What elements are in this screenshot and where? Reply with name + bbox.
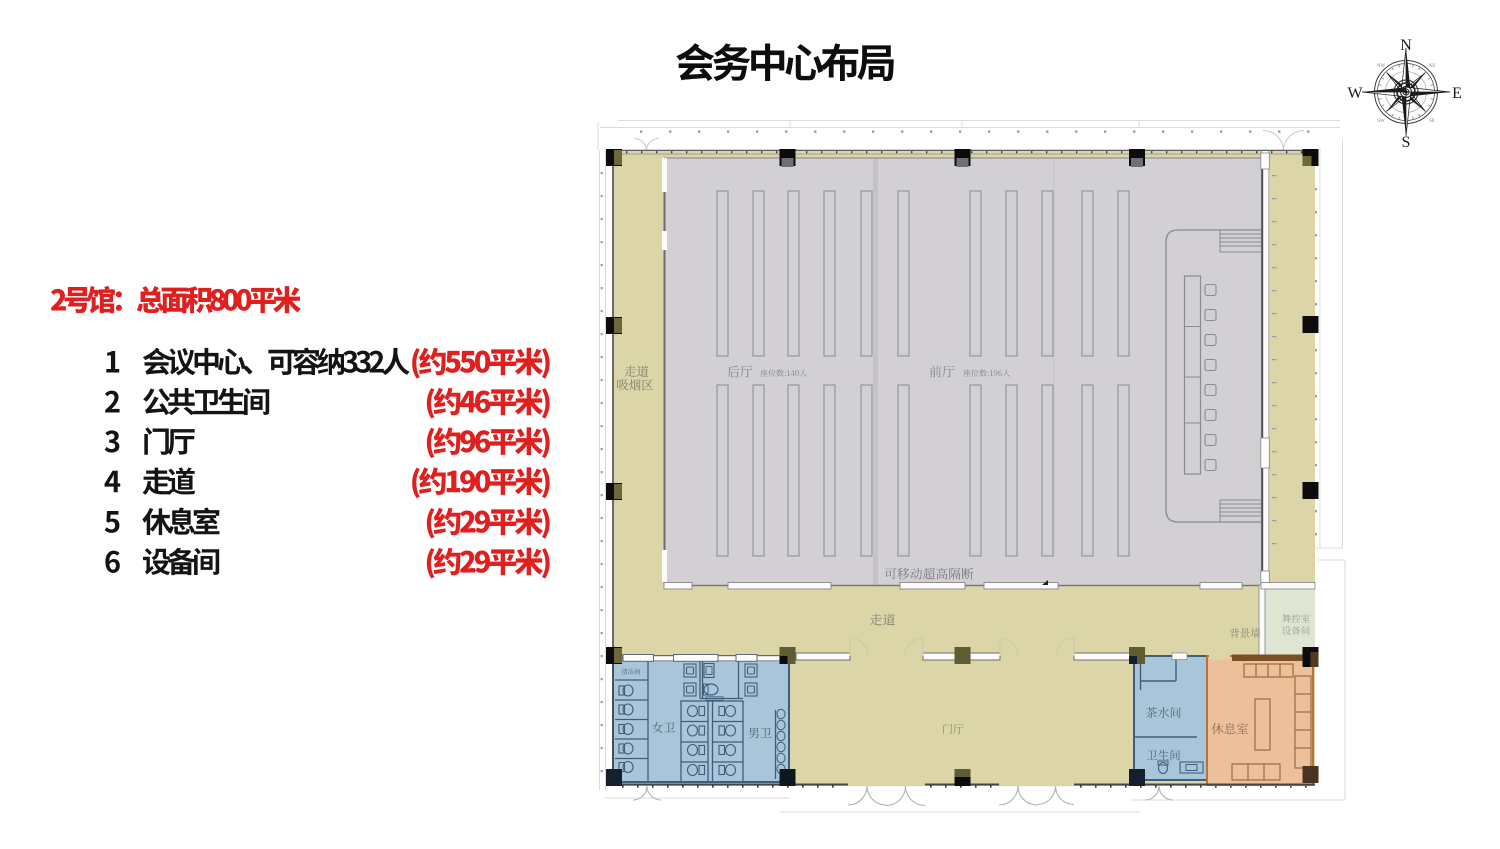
svg-text:SW: SW xyxy=(1377,119,1385,124)
svg-text:S: S xyxy=(1402,134,1411,151)
svg-text:N: N xyxy=(1400,37,1412,54)
svg-text:NW: NW xyxy=(1377,64,1386,69)
svg-text:W: W xyxy=(1347,85,1363,102)
svg-text:NE: NE xyxy=(1429,64,1436,69)
svg-text:E: E xyxy=(1452,85,1462,102)
svg-text:SE: SE xyxy=(1429,119,1435,124)
